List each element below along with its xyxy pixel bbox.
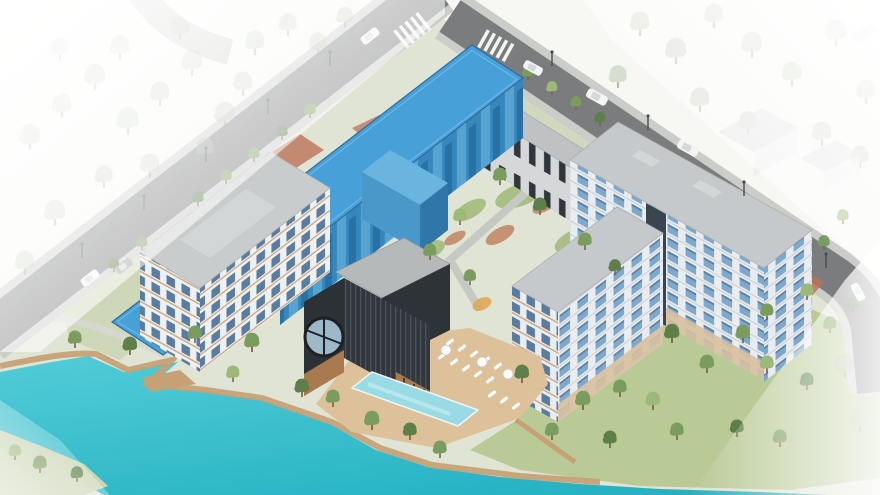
umbrella xyxy=(441,345,451,355)
umbrella xyxy=(503,369,513,379)
umbrella xyxy=(477,357,487,367)
aerial-rendering-canvas xyxy=(0,0,880,495)
site-rendering xyxy=(0,0,880,495)
